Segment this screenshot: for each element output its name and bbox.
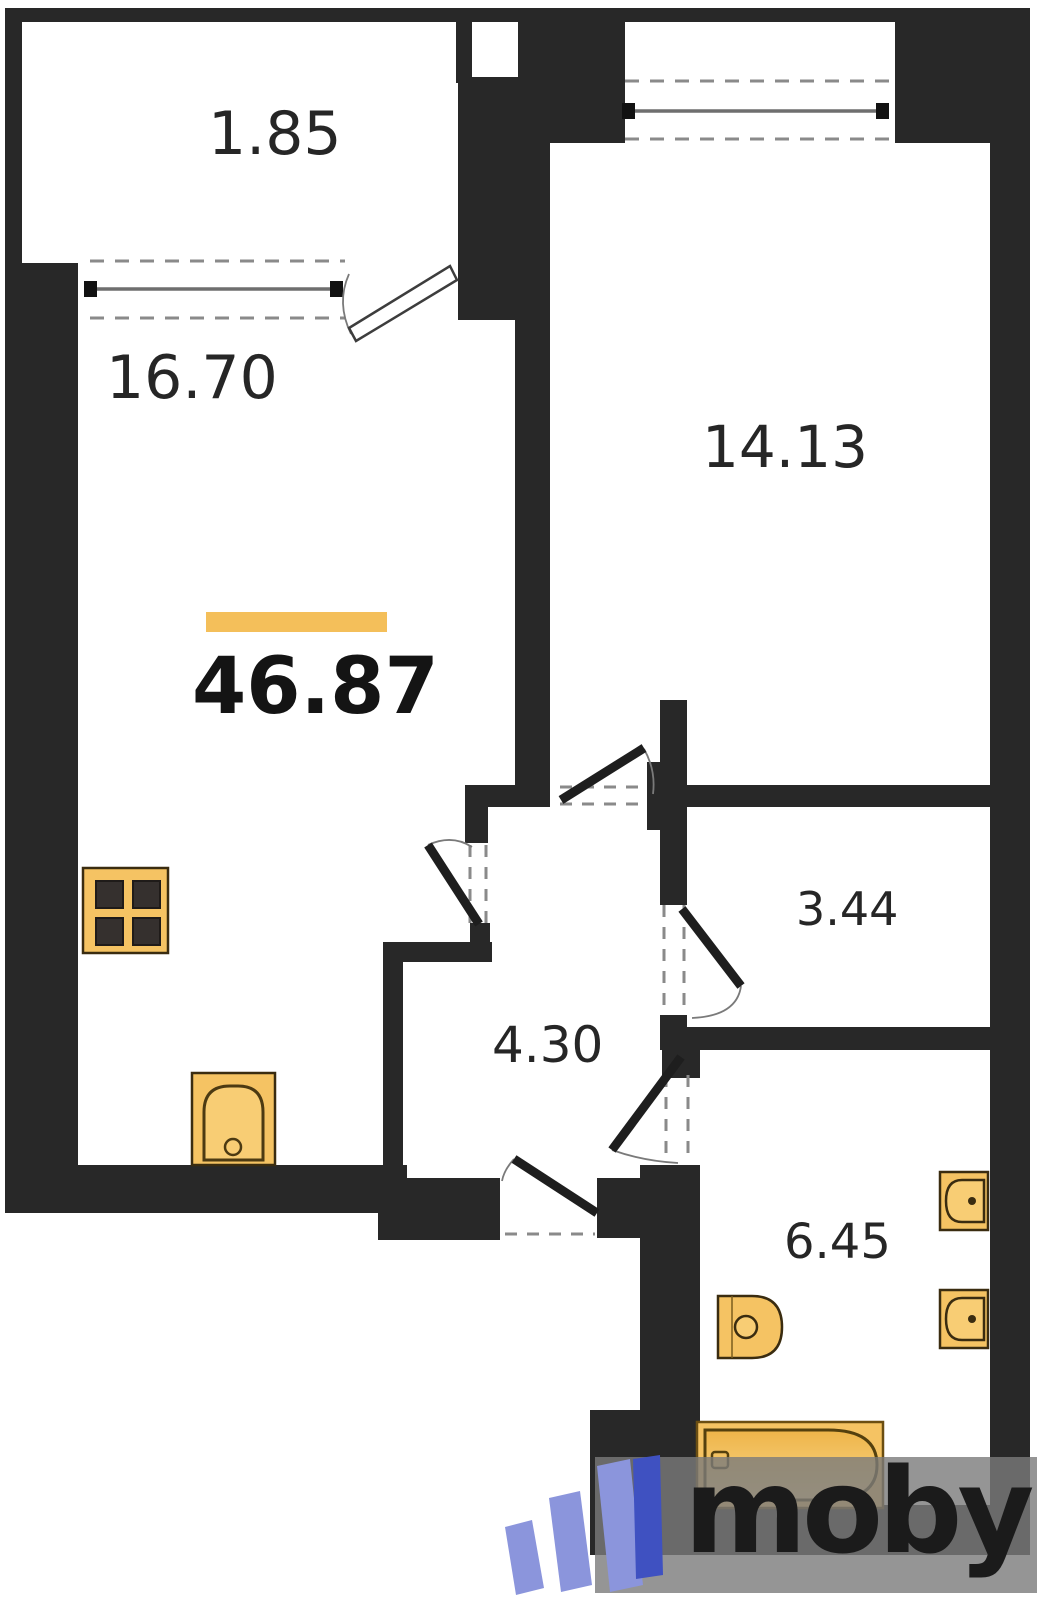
hall-door-icon	[428, 840, 486, 925]
wall	[5, 1165, 407, 1213]
kitchen-sink-icon	[192, 1073, 275, 1165]
watermark-logo-text: moby	[684, 1452, 1029, 1570]
bedroom-area-label: 14.13	[702, 418, 868, 476]
hall-area-label: 4.30	[492, 1020, 603, 1070]
bathroom-sink-icon-2	[940, 1290, 988, 1348]
bedroom-window-icon	[622, 81, 895, 139]
wall	[456, 13, 472, 83]
total-area-label: 46.87	[192, 648, 439, 726]
moby-logo-icon	[490, 1450, 675, 1600]
wall	[990, 13, 1030, 1555]
balcony-area-label: 1.85	[208, 104, 342, 164]
toilet-icon	[718, 1296, 782, 1358]
balcony-door-icon	[343, 266, 457, 341]
stove-icon	[83, 868, 168, 953]
bedroom-door-icon	[560, 748, 654, 804]
wall	[518, 13, 625, 143]
wall	[515, 318, 550, 807]
wall	[662, 1050, 700, 1078]
storage-door-icon	[664, 905, 741, 1018]
wall	[660, 1015, 687, 1030]
wall	[660, 1027, 1030, 1050]
total-area-accent-bar	[206, 612, 387, 632]
wall	[5, 8, 22, 264]
storage-area-label: 3.44	[796, 886, 898, 932]
floor-plan: 1.85 16.70 14.13 3.44 4.30 6.45 46.87 mo…	[0, 0, 1037, 1600]
bathroom-area-label: 6.45	[784, 1218, 891, 1266]
living-room-area-label: 16.70	[106, 348, 278, 408]
wall	[895, 13, 1000, 143]
wall	[465, 785, 488, 843]
balcony-window-icon	[84, 261, 345, 318]
bathroom-sink-icon	[940, 1172, 988, 1230]
entrance-door-icon	[502, 1159, 597, 1234]
wall	[660, 700, 687, 790]
wall	[378, 1178, 500, 1240]
wall	[647, 785, 1030, 807]
wall	[383, 942, 403, 1165]
wall	[5, 263, 78, 1165]
